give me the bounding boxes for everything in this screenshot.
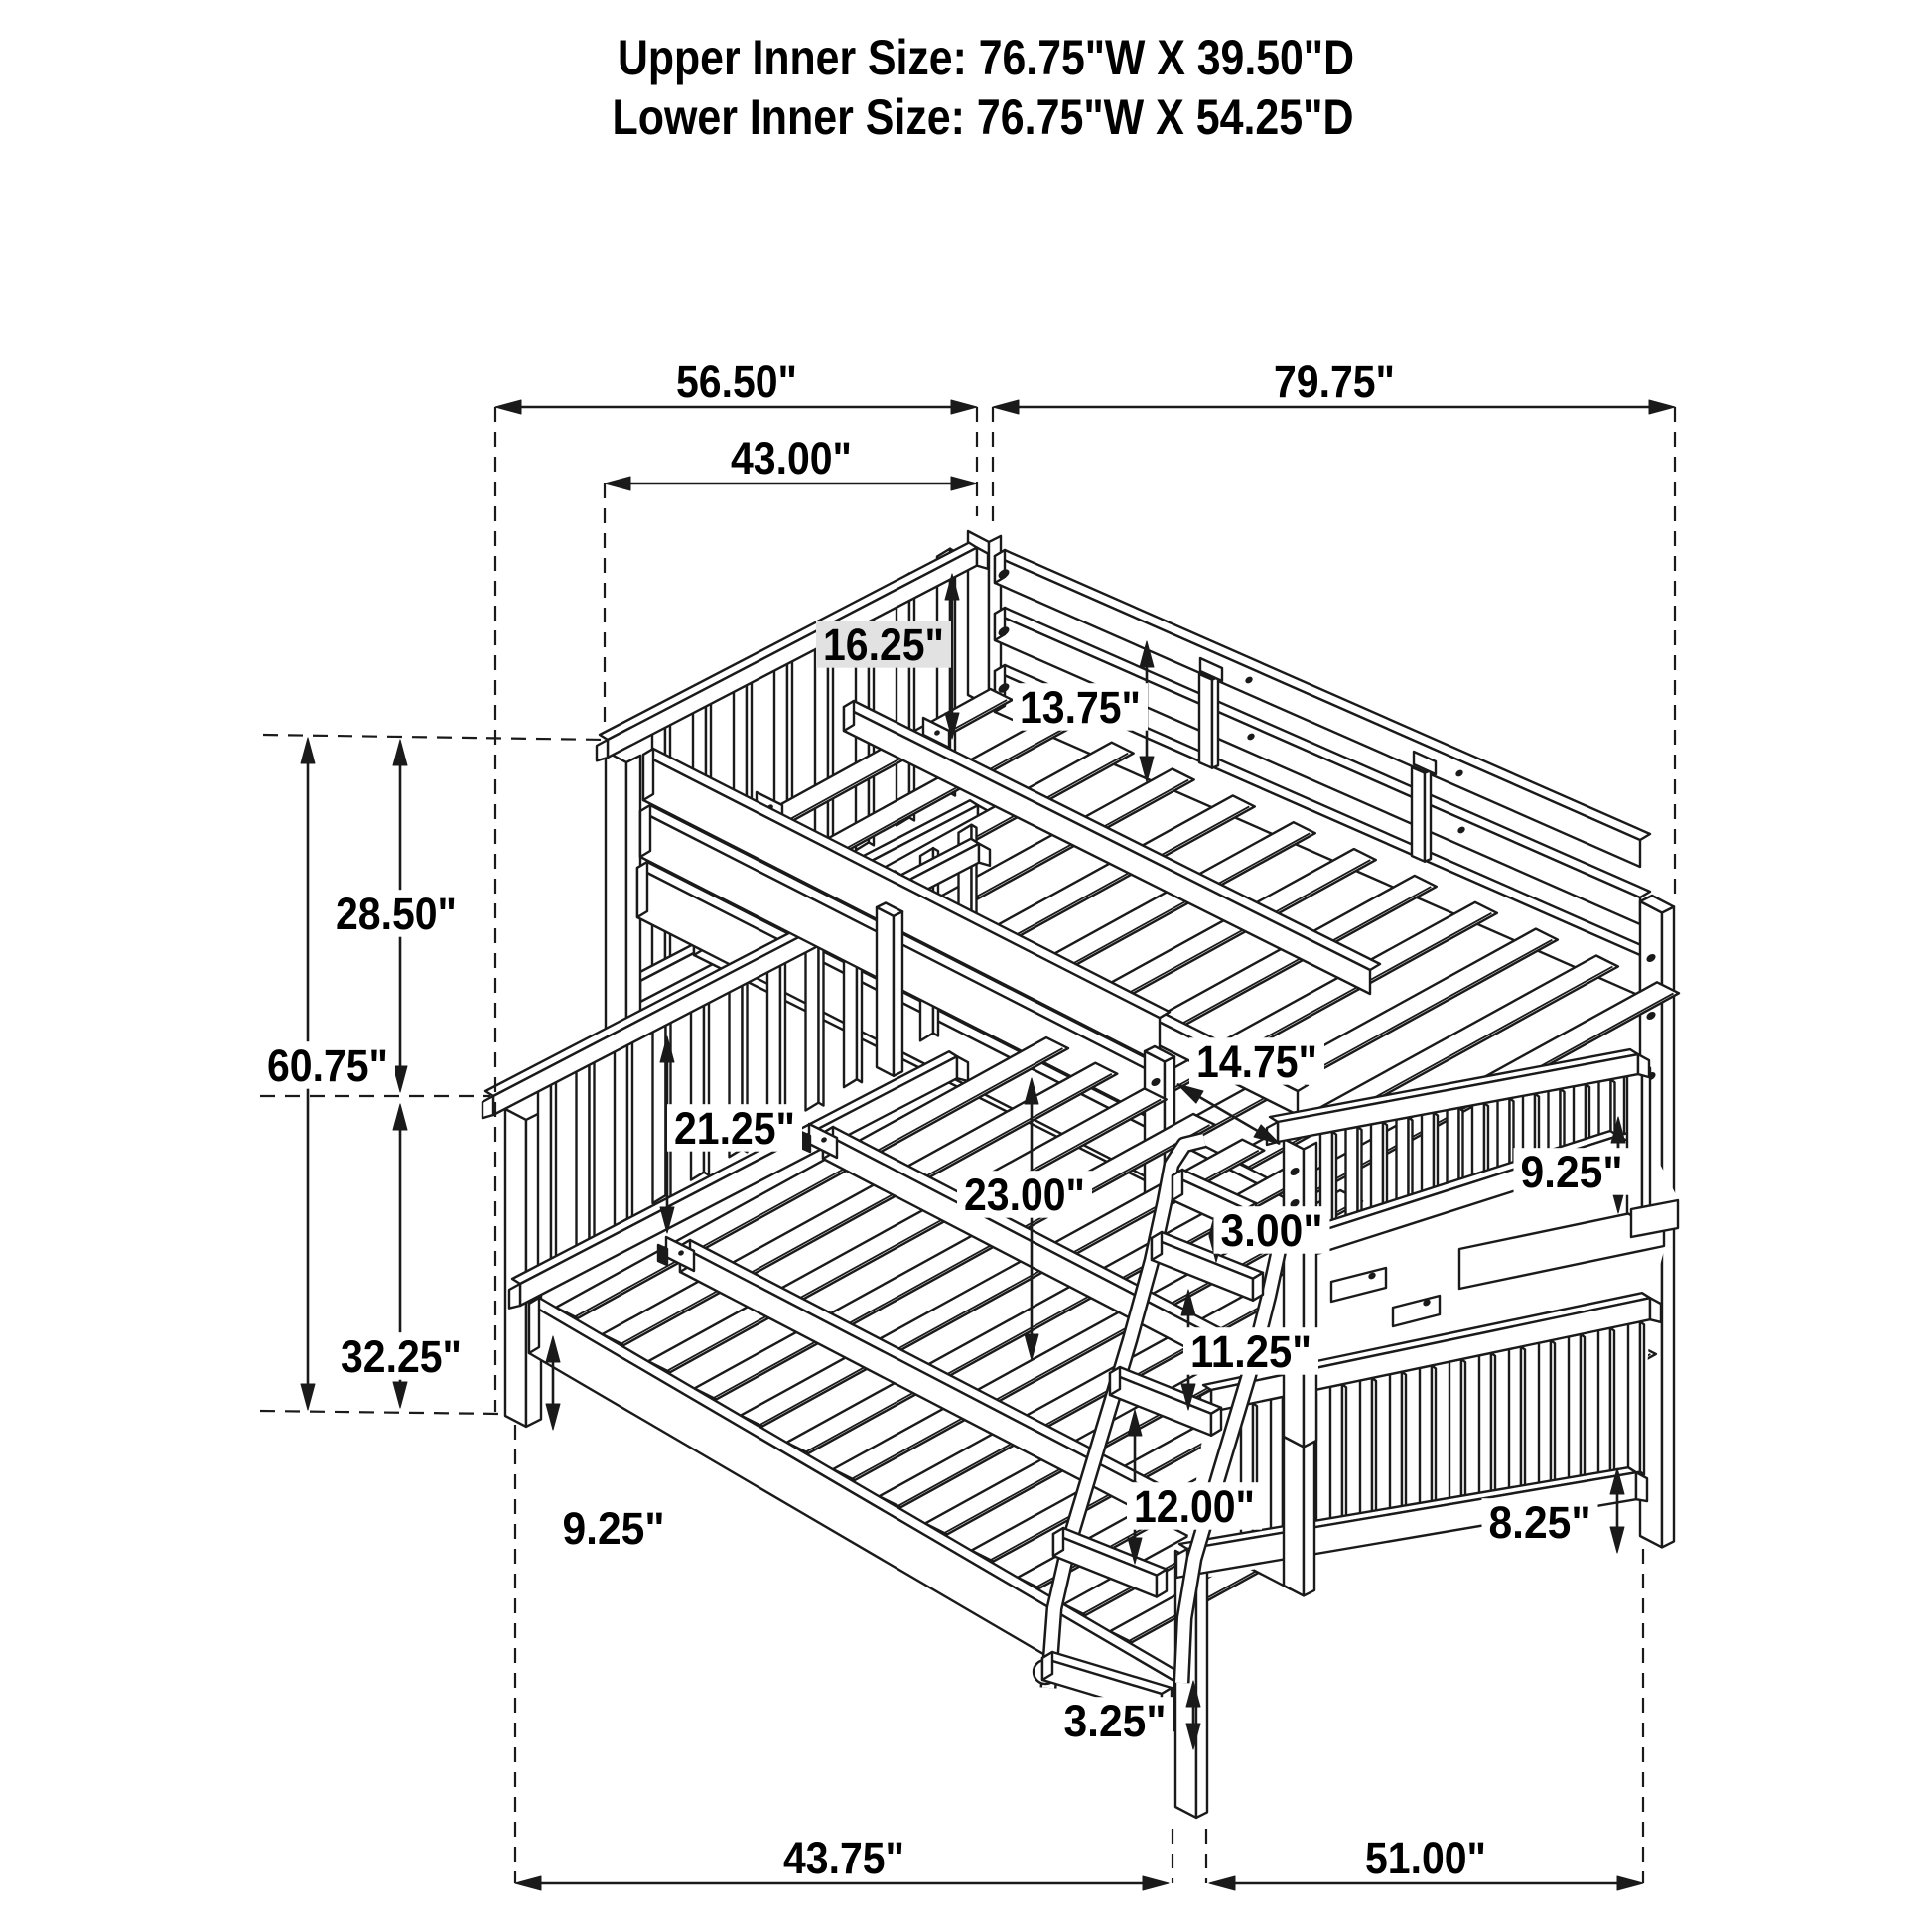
svg-text:14.75": 14.75" (1196, 1036, 1317, 1087)
svg-text:13.75": 13.75" (1020, 682, 1141, 733)
svg-text:Lower Inner Size: 76.75"W X 54: Lower Inner Size: 76.75"W X 54.25"D (613, 89, 1354, 145)
svg-text:21.25": 21.25" (674, 1103, 795, 1154)
svg-text:51.00": 51.00" (1365, 1833, 1486, 1883)
svg-text:43.75": 43.75" (783, 1833, 904, 1883)
svg-text:9.25": 9.25" (1521, 1147, 1623, 1197)
svg-text:Upper Inner Size: 76.75"W X 39: Upper Inner Size: 76.75"W X 39.50"D (618, 30, 1354, 85)
svg-text:28.50": 28.50" (336, 889, 457, 939)
svg-text:60.75": 60.75" (267, 1040, 388, 1091)
svg-text:32.25": 32.25" (341, 1331, 462, 1382)
svg-text:43.00": 43.00" (731, 433, 852, 483)
svg-text:8.25": 8.25" (1489, 1497, 1591, 1548)
svg-text:9.25": 9.25" (563, 1503, 665, 1554)
svg-text:23.00": 23.00" (964, 1170, 1085, 1220)
svg-text:3.25": 3.25" (1064, 1696, 1167, 1746)
svg-text:3.00": 3.00" (1221, 1205, 1323, 1256)
svg-text:16.25": 16.25" (823, 620, 944, 670)
svg-text:12.00": 12.00" (1134, 1481, 1255, 1532)
svg-text:79.75": 79.75" (1274, 356, 1395, 407)
svg-text:11.25": 11.25" (1190, 1326, 1311, 1377)
svg-text:56.50": 56.50" (676, 356, 797, 407)
